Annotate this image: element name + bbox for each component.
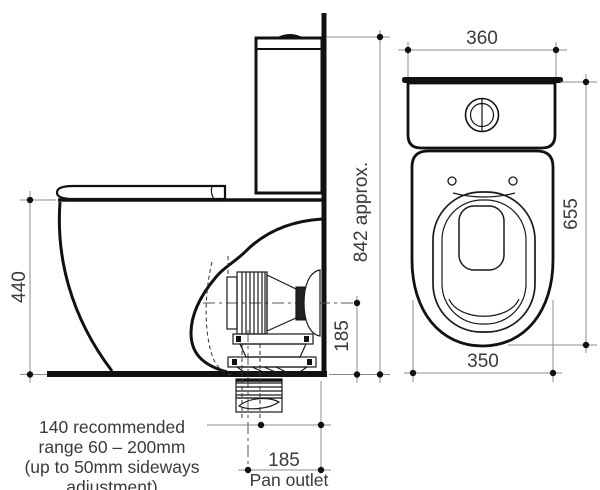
dim-440-label: 440 bbox=[9, 271, 30, 303]
dual-flush-button bbox=[466, 99, 499, 132]
side-view: 440 842 approx. 185 185 Pan outlet bbox=[9, 13, 390, 490]
dim-185v-label: 185 bbox=[332, 320, 353, 352]
dim-dot bbox=[27, 197, 33, 203]
dim-360-label: 360 bbox=[466, 28, 498, 49]
toilet-dimension-diagram: 440 842 approx. 185 185 Pan outlet bbox=[0, 0, 600, 490]
bowl-front-profile bbox=[59, 202, 112, 371]
dim-dot bbox=[318, 422, 324, 428]
dim-dot bbox=[410, 370, 416, 376]
pan-outlet-label: Pan outlet bbox=[250, 470, 329, 490]
dim-dot bbox=[258, 422, 264, 428]
dim-dot bbox=[354, 300, 360, 306]
note-line-2: range 60 – 200mm bbox=[39, 437, 186, 457]
dim-dot bbox=[583, 342, 589, 348]
dim-pan-outlet-value: 185 bbox=[268, 450, 300, 471]
seat-side bbox=[57, 186, 225, 199]
flush-button-side bbox=[276, 34, 304, 38]
dim-dot bbox=[377, 371, 383, 377]
note-line-4: adjustment) bbox=[66, 477, 157, 490]
note-line-3: (up to 50mm sideways bbox=[24, 457, 199, 477]
dim-outlet-height: 185 bbox=[332, 296, 360, 383]
dim-dot bbox=[553, 47, 559, 53]
underfloor-pipe-stripes bbox=[236, 383, 282, 395]
dim-seat-height: 440 bbox=[9, 191, 56, 383]
dim-655-label: 655 bbox=[561, 198, 582, 230]
flange-band-lower bbox=[228, 357, 316, 367]
flange-bolts-lower bbox=[232, 359, 312, 365]
funnel-body bbox=[240, 344, 306, 357]
dim-350-label: 350 bbox=[467, 351, 499, 372]
dim-dot bbox=[27, 371, 33, 377]
dim-dot bbox=[354, 371, 360, 377]
connector-stripes bbox=[242, 272, 265, 334]
flange-bolts-upper bbox=[236, 336, 309, 342]
cistern-side bbox=[256, 38, 322, 193]
dim-842-label: 842 approx. bbox=[351, 162, 372, 262]
dim-dot bbox=[583, 79, 589, 85]
flange-band-upper bbox=[233, 334, 313, 344]
dim-dot bbox=[550, 370, 556, 376]
technical-drawing-page: 440 842 approx. 185 185 Pan outlet bbox=[0, 0, 600, 490]
cup-swirl bbox=[239, 399, 279, 409]
dim-cistern-width: 360 bbox=[398, 28, 567, 77]
pan-connector-assembly bbox=[203, 256, 362, 471]
note-line-1: 140 recommended bbox=[39, 417, 185, 437]
dim-dot bbox=[377, 34, 383, 40]
front-view: 360 655 350 bbox=[398, 28, 597, 382]
dim-dot bbox=[405, 47, 411, 53]
dim-pan-outlet: 185 Pan outlet bbox=[207, 381, 331, 490]
wall-flange bbox=[304, 270, 320, 336]
setout-note: 140 recommended range 60 – 200mm (up to … bbox=[24, 417, 199, 490]
